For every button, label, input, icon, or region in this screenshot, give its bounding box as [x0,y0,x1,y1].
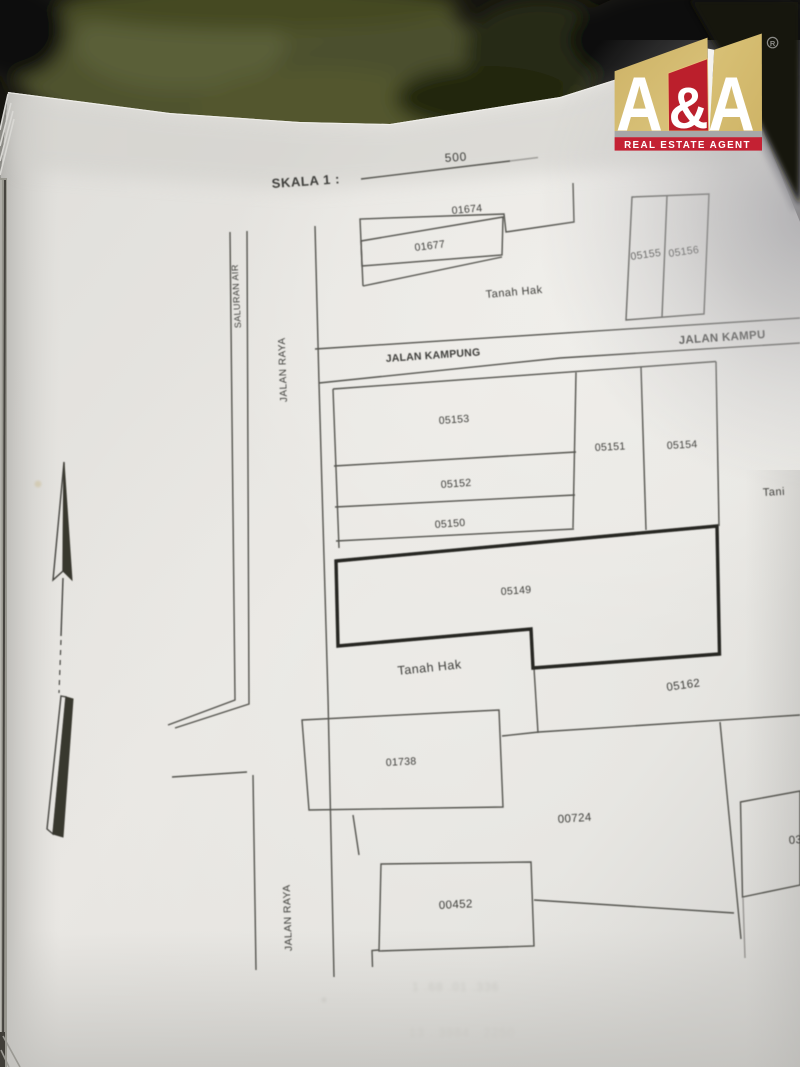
svg-text:05153: 05153 [438,413,469,427]
svg-text:1 .68 .01 .336: 1 .68 .01 .336 [412,980,499,994]
svg-text:05152: 05152 [440,477,471,491]
svg-text:13 . 3984 . 2250: 13 . 3984 . 2250 [409,1026,515,1040]
svg-text:R: R [770,39,776,48]
svg-text:JALAN RAYA: JALAN RAYA [277,337,290,402]
svg-text:03: 03 [788,834,800,847]
svg-text:00724: 00724 [557,812,592,826]
svg-text:05150: 05150 [434,517,465,531]
svg-text:01738: 01738 [386,755,417,769]
svg-text:05149: 05149 [500,584,531,598]
svg-text:REAL ESTATE AGENT: REAL ESTATE AGENT [624,140,751,151]
svg-text:JALAN RAYA: JALAN RAYA [281,884,295,951]
svg-text:&: & [669,76,709,141]
svg-text:500: 500 [444,149,467,165]
svg-text:00452: 00452 [439,898,474,912]
